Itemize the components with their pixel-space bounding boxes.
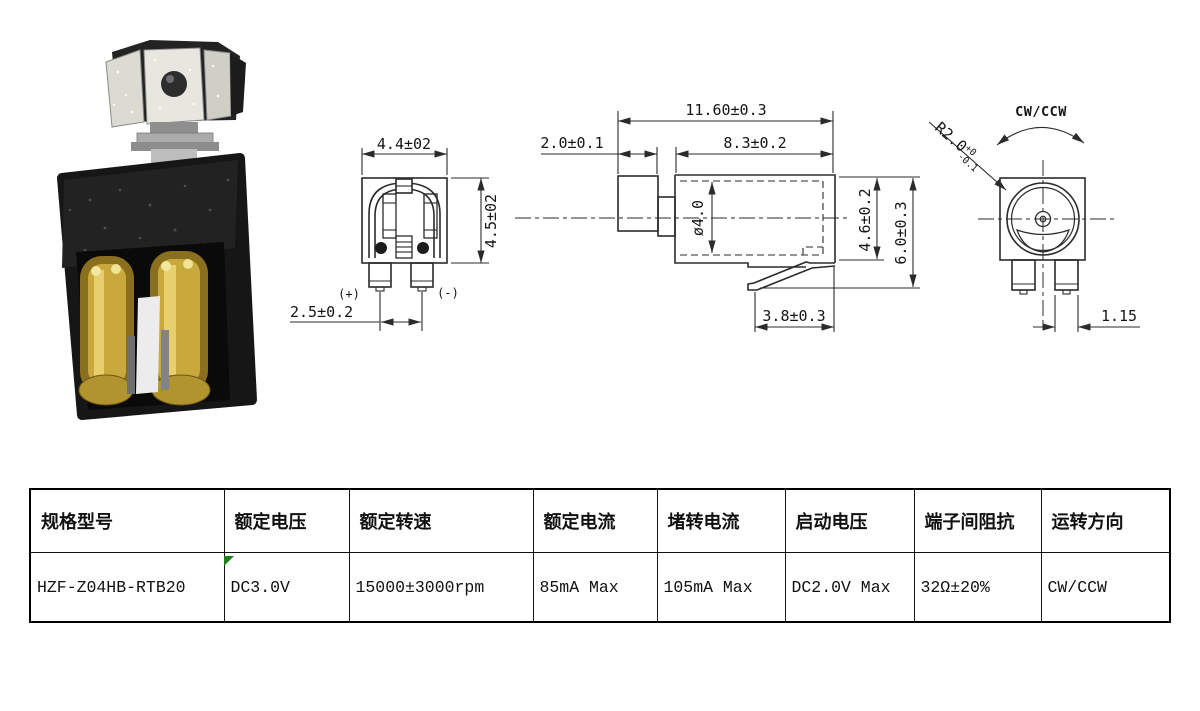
- polarity-plus-label: (+): [338, 287, 360, 301]
- header-model: 规格型号: [30, 489, 224, 553]
- rotation-direction-label: CW/CCW: [1015, 104, 1067, 120]
- side-terminal-dim: 3.8±0.3: [762, 307, 825, 325]
- cell-terminal-impedance: 32Ω±20%: [914, 553, 1041, 623]
- front-pin-pitch-dim: 2.5±0.2: [290, 303, 353, 321]
- side-view: [515, 175, 848, 290]
- cell-corner-flag: [224, 556, 234, 566]
- header-rotation-direction: 运转方向: [1041, 489, 1170, 553]
- header-starting-voltage: 启动电压: [785, 489, 914, 553]
- polarity-minus-label: (-): [437, 286, 459, 300]
- cell-rated-voltage: DC3.0V: [224, 553, 349, 623]
- header-rated-voltage: 额定电压: [224, 489, 349, 553]
- spec-header-row: 规格型号 额定电压 额定转速 额定电流 堵转电流 启动电压 端子间阻抗 运转方向: [30, 489, 1170, 553]
- radius-dim-group: R2.0 +0 -0.1: [928, 118, 988, 174]
- cell-rated-speed: 15000±3000rpm: [349, 553, 533, 623]
- header-rated-speed: 额定转速: [349, 489, 533, 553]
- cell-model: HZF-Z04HB-RTB20: [30, 553, 224, 623]
- header-rated-current: 额定电流: [533, 489, 657, 553]
- side-total-length-dim: 11.60±0.3: [685, 101, 766, 119]
- side-body-length-dim: 8.3±0.2: [723, 134, 786, 152]
- product-photo: [62, 40, 252, 415]
- side-body-height-dim: 4.6±0.2: [856, 188, 874, 251]
- front-view: [362, 178, 447, 291]
- cell-stall-current: 105mA Max: [657, 553, 785, 623]
- side-overall-height-dim: 6.0±0.3: [892, 201, 910, 264]
- spec-table: 规格型号 额定电压 额定转速 额定电流 堵转电流 启动电压 端子间阻抗 运转方向…: [29, 488, 1171, 623]
- side-weight-length-dim: 2.0±0.1: [540, 134, 603, 152]
- end-view: [978, 160, 1118, 330]
- cell-rated-current: 85mA Max: [533, 553, 657, 623]
- side-diameter-dim: ø4.0: [689, 200, 707, 236]
- cell-starting-voltage: DC2.0V Max: [785, 553, 914, 623]
- technical-drawing-canvas: 4.4±02 4.5±02 2.5±0.2 (+) (-): [0, 0, 1200, 486]
- spec-data-row: HZF-Z04HB-RTB20 DC3.0V 15000±3000rpm 85m…: [30, 553, 1170, 623]
- datasheet-page: 4.4±02 4.5±02 2.5±0.2 (+) (-): [0, 0, 1200, 711]
- front-height-dim: 4.5±02: [482, 194, 500, 248]
- end-pin-width-dim: 1.15: [1101, 307, 1137, 325]
- header-stall-current: 堵转电流: [657, 489, 785, 553]
- radius-tol-lower: -0.1: [955, 151, 980, 174]
- header-terminal-impedance: 端子间阻抗: [914, 489, 1041, 553]
- weight-screw-hole: [161, 71, 187, 97]
- front-width-dim: 4.4±02: [377, 135, 431, 153]
- cell-rotation-direction: CW/CCW: [1041, 553, 1170, 623]
